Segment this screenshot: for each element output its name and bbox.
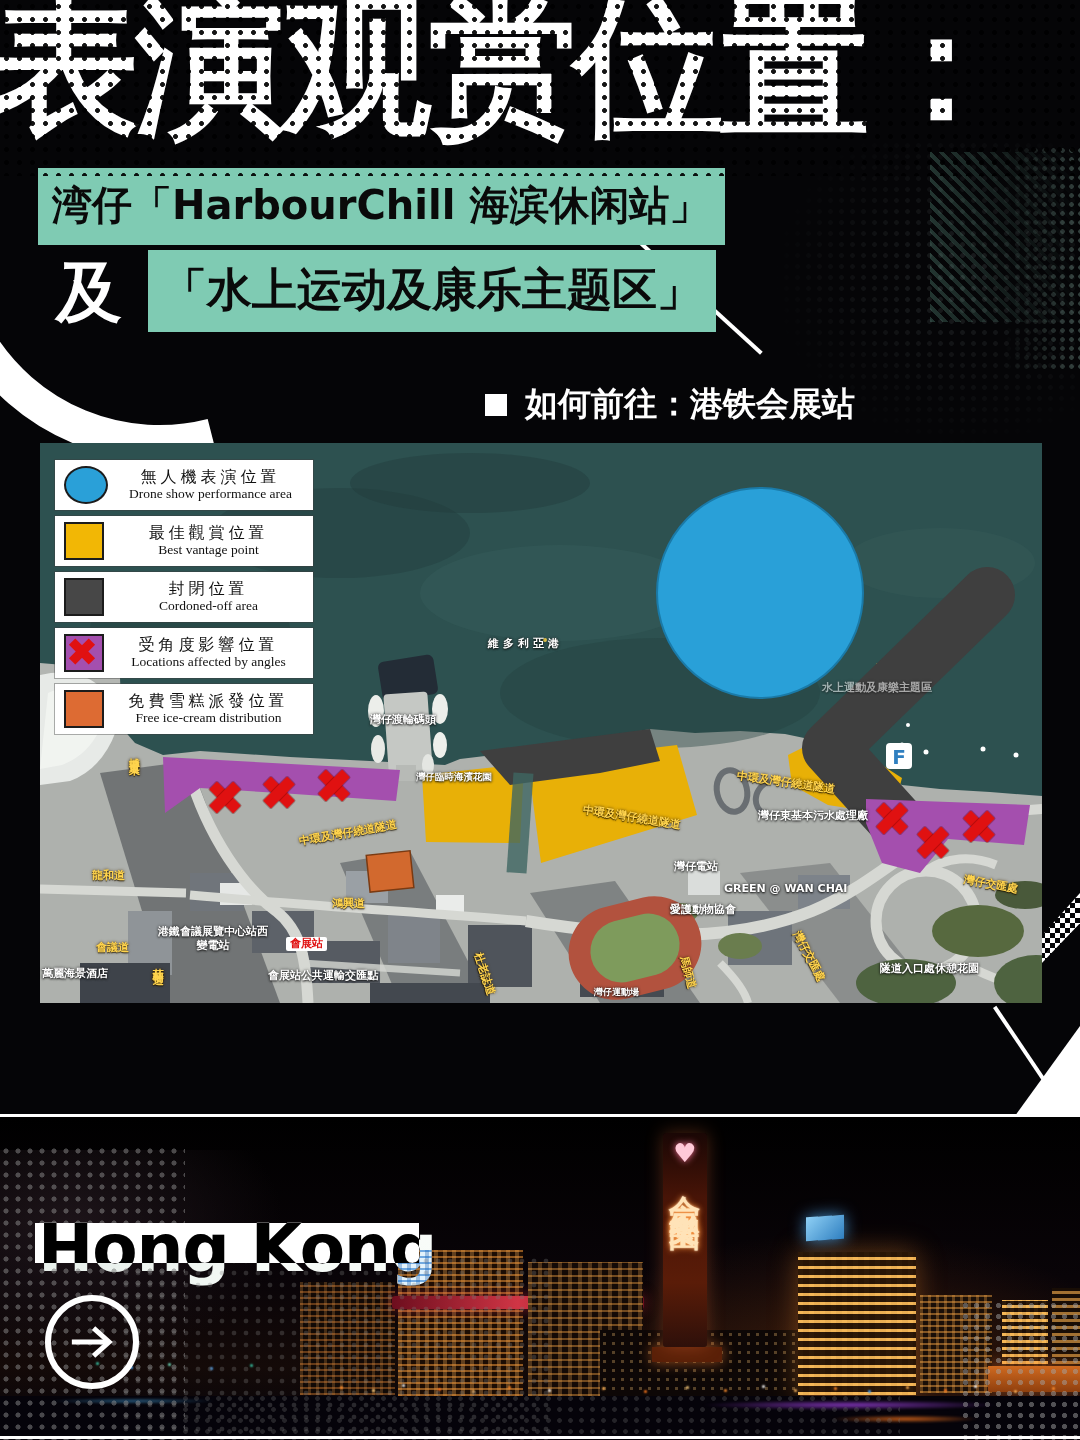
map-label: 灣仔東基本污水處理廠 (758, 809, 868, 823)
poster-page: 表演观赏位置： 湾仔「HarbourChill 海滨休闲站」 及 「水上运动及康… (0, 0, 1080, 1440)
map-label: 愛護動物協會 (670, 903, 736, 917)
map-label: 維多利亞港 (488, 637, 563, 651)
heart-icon: ♥ (663, 1138, 707, 1168)
venue-banner-watersports: 「水上运动及康乐主题区」 (148, 250, 716, 332)
brand-text: Hong Kong (38, 1210, 436, 1287)
map-label: 鴻興道 (332, 897, 365, 911)
map-label: 灣仔電站 (674, 860, 718, 874)
legend-item-drone-show-area: 無人機表演位置Drone show performance area (55, 460, 313, 510)
map-label: 博覽道東 (126, 749, 140, 757)
map-label: 水上運動及康樂主題區 (822, 681, 932, 695)
legend-item-cordoned-off: 封閉位置Cordoned-off area (55, 572, 313, 622)
legend-item-best-vantage: 最佳觀賞位置Best vantage point (55, 516, 313, 566)
bottom-edge-line (0, 1436, 1080, 1439)
teal-grunge-decoration (930, 152, 1080, 322)
free-ice-cream-swatch-icon (64, 690, 104, 728)
checker-swirl-decoration (1040, 893, 1080, 965)
legend-label: 受角度影響位置Locations affected by angles (104, 636, 313, 670)
x-mark-icon (914, 823, 952, 861)
legend-label: 最佳觀賞位置Best vantage point (104, 524, 313, 558)
x-mark-icon (960, 807, 998, 845)
map-label: 會議道 (96, 941, 129, 955)
drone-show-area-swatch-icon (64, 466, 108, 504)
x-mark-icon (206, 778, 244, 816)
map-label: 龍和道 (92, 869, 125, 883)
legend-label: 封閉位置Cordoned-off area (104, 580, 313, 614)
map-label: 萬麗海景酒店 (42, 967, 108, 981)
map-legend: 無人機表演位置Drone show performance area最佳觀賞位置… (55, 460, 313, 734)
x-mark-icon (315, 766, 353, 804)
map-label: 灣仔臨時海濱花園 (416, 771, 492, 783)
conjunction-text: 及 (56, 248, 122, 338)
best-vantage-swatch-icon (64, 522, 104, 560)
map-label: 菲林明道 (150, 959, 164, 967)
arc-decoration (0, 328, 230, 453)
square-bullet-icon (485, 394, 507, 416)
cordoned-off-swatch-icon (64, 578, 104, 616)
directions-row: 如何前往：港铁会展站 (485, 382, 855, 427)
halftone-bottom-right (960, 1300, 1080, 1440)
vertical-lit-sign: ♥ 合家樂園 (663, 1133, 707, 1347)
directions-text: 如何前往：港铁会展站 (525, 382, 855, 427)
map-label: 會展站 (286, 937, 327, 951)
x-mark-icon (260, 773, 298, 811)
map-label: GREEN @ WAN CHAI (724, 882, 847, 896)
affected-by-angles-swatch-icon (64, 634, 104, 672)
satellite-map-panel: F 無人機表演位置Drone show performance area最佳觀賞… (40, 443, 1042, 1003)
map-label: 灣仔渡輪碼頭 (370, 713, 436, 727)
map-label: 會展站公共運輸交匯點 (268, 969, 378, 983)
legend-item-free-ice-cream: 免費雪糕派發位置Free ice-cream distribution (55, 684, 313, 734)
footer-divider-line (0, 1114, 1080, 1117)
skyline-blue-screen (806, 1215, 844, 1242)
x-mark-icon (873, 799, 911, 837)
legend-item-affected-by-angles: 受角度影響位置Locations affected by angles (55, 628, 313, 678)
venue-banner-harbourchill: 湾仔「HarbourChill 海滨休闲站」 (38, 168, 725, 245)
skyline-lit-tower (798, 1252, 916, 1395)
next-arrow-button[interactable] (45, 1295, 139, 1389)
map-label: 灣仔運動場 (594, 987, 639, 999)
page-title: 表演观赏位置： (0, 0, 1080, 146)
map-label: 港鐵會議展覽中心站西 變電站 (158, 925, 268, 954)
sign-base-light (652, 1347, 722, 1362)
sign-characters: 合家樂園 (664, 1170, 706, 1206)
map-label: 隧道入口處休憩花園 (880, 962, 979, 976)
legend-label: 免費雪糕派發位置Free ice-cream distribution (104, 692, 313, 726)
halftone-over-water (180, 1393, 900, 1439)
right-arrow-icon (61, 1311, 123, 1373)
legend-label: 無人機表演位置Drone show performance area (108, 468, 313, 502)
